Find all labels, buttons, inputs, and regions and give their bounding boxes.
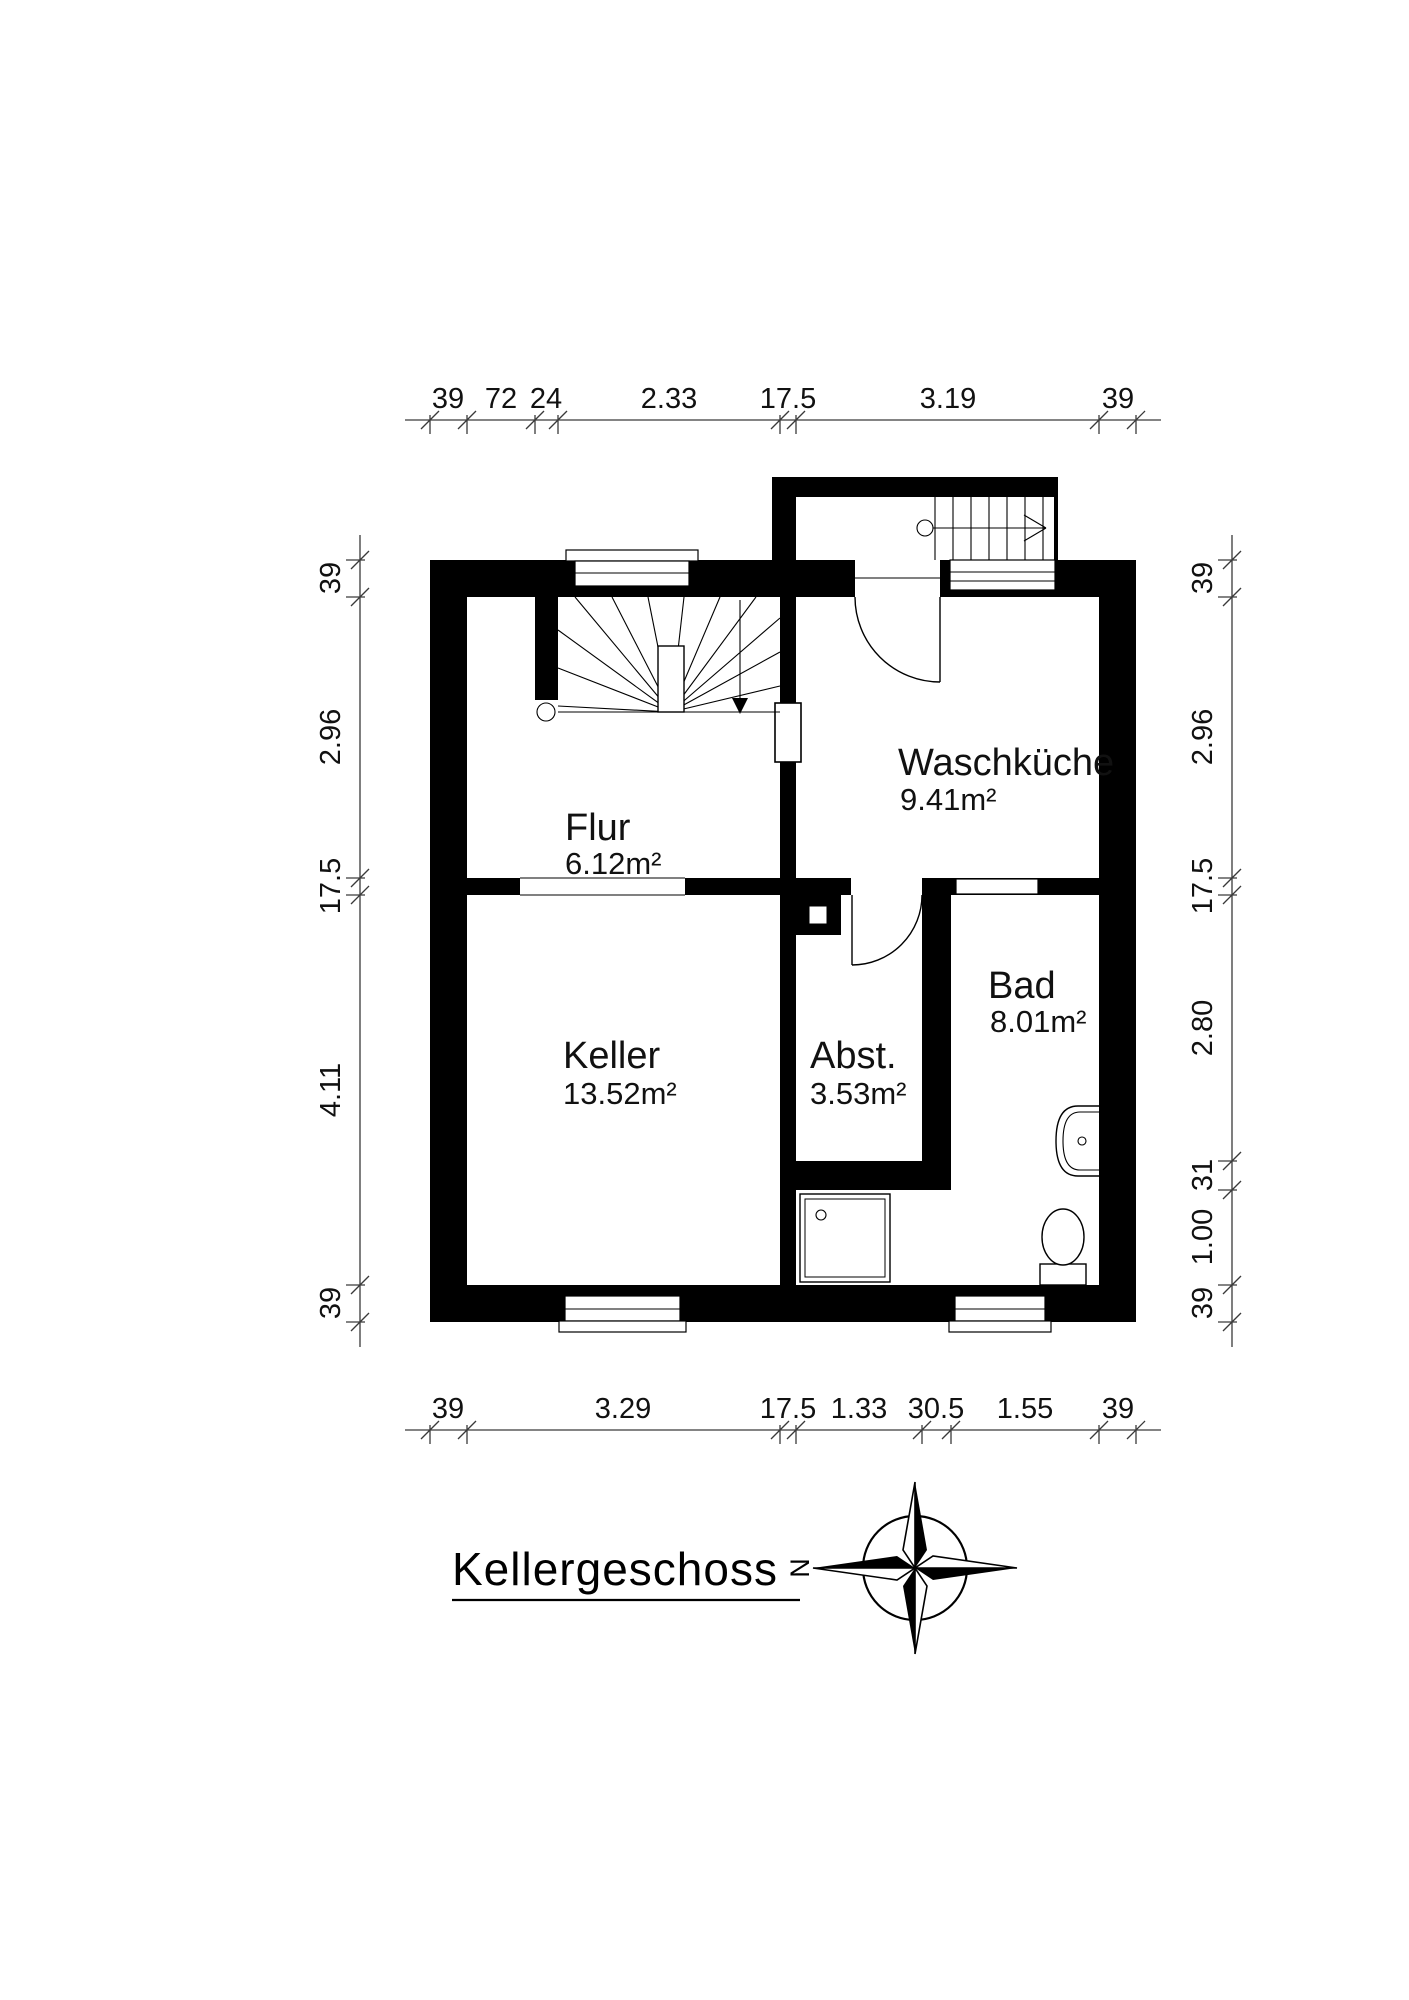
room-area-flur: 6.12m² <box>565 846 661 881</box>
dim-label: 2.96 <box>1187 709 1219 765</box>
dimension-chain-top: 39 72 24 2.33 17.5 3.19 39 <box>405 383 1161 434</box>
dim-label: 17.5 <box>760 1393 816 1425</box>
dim-label: 72 <box>485 383 517 415</box>
shower <box>800 1194 890 1282</box>
room-label-abst: Abst. <box>810 1035 897 1077</box>
north-arrow-icon: N <box>785 1482 1017 1654</box>
dim-label: 4.11 <box>315 1063 347 1117</box>
dim-label: 39 <box>1187 1287 1219 1319</box>
abst-door <box>852 895 922 965</box>
internal-window <box>956 879 1038 894</box>
dim-label: 3.19 <box>920 383 976 415</box>
dim-label: 39 <box>315 562 347 594</box>
dim-label: 39 <box>315 1287 347 1319</box>
north-letter: N <box>785 1558 815 1578</box>
room-area-keller: 13.52m² <box>563 1076 677 1111</box>
dim-label: 2.80 <box>1187 1000 1219 1056</box>
dim-label: 2.33 <box>641 383 697 415</box>
dim-ticks-left <box>346 551 369 1331</box>
room-area-waschkueche: 9.41m² <box>900 782 996 817</box>
dim-label: 39 <box>1187 562 1219 594</box>
dimension-chain-left: 39 2.96 17.5 4.11 39 <box>315 535 369 1347</box>
room-label-waschkueche: Waschküche <box>898 742 1114 784</box>
dim-label: 1.55 <box>997 1393 1053 1425</box>
exterior-stair <box>917 497 1046 560</box>
dim-label: 30.5 <box>908 1393 964 1425</box>
dim-label: 39 <box>432 1393 464 1425</box>
dim-label: 17.5 <box>1187 858 1219 914</box>
dim-label: 1.00 <box>1187 1209 1219 1265</box>
window-waschkueche-top <box>950 560 1055 590</box>
dim-label: 24 <box>530 383 562 415</box>
room-area-abst: 3.53m² <box>810 1076 906 1111</box>
chimney <box>796 895 841 935</box>
toilet <box>1040 1209 1086 1285</box>
dim-label: 17.5 <box>315 858 347 914</box>
dim-label: 39 <box>432 383 464 415</box>
room-label-keller: Keller <box>563 1035 660 1077</box>
dim-label: 17.5 <box>760 383 816 415</box>
dimension-chain-right: 39 2.96 17.5 2.80 31 1.00 39 <box>1187 535 1241 1347</box>
room-label-bad: Bad <box>988 965 1056 1007</box>
dim-label: 3.29 <box>595 1393 651 1425</box>
dim-label: 39 <box>1102 383 1134 415</box>
dim-label: 1.33 <box>831 1393 887 1425</box>
drawing-title: Kellergeschoss <box>452 1543 800 1600</box>
window-keller-bottom <box>559 1296 686 1332</box>
room-label-flur: Flur <box>565 807 631 849</box>
entrance-door <box>855 597 940 682</box>
winder-stair <box>537 597 780 721</box>
dim-label: 39 <box>1102 1393 1134 1425</box>
page-title: Kellergeschoss <box>452 1543 778 1595</box>
window-bad-bottom <box>949 1296 1051 1332</box>
dim-ticks-right <box>1218 551 1241 1331</box>
dim-label: 31 <box>1187 1159 1219 1191</box>
dim-label: 2.96 <box>315 709 347 765</box>
floor-plan-svg: Flur 6.12m² Waschküche 9.41m² Keller 13.… <box>0 0 1409 2000</box>
sink <box>1056 1106 1099 1176</box>
dimension-chain-bottom: 39 3.29 17.5 1.33 30.5 1.55 39 <box>405 1393 1161 1444</box>
walls <box>430 477 1136 1322</box>
floor-plan-page: Flur 6.12m² Waschküche 9.41m² Keller 13.… <box>0 0 1409 2000</box>
room-area-bad: 8.01m² <box>990 1004 1086 1039</box>
window-flur-top <box>566 550 698 586</box>
